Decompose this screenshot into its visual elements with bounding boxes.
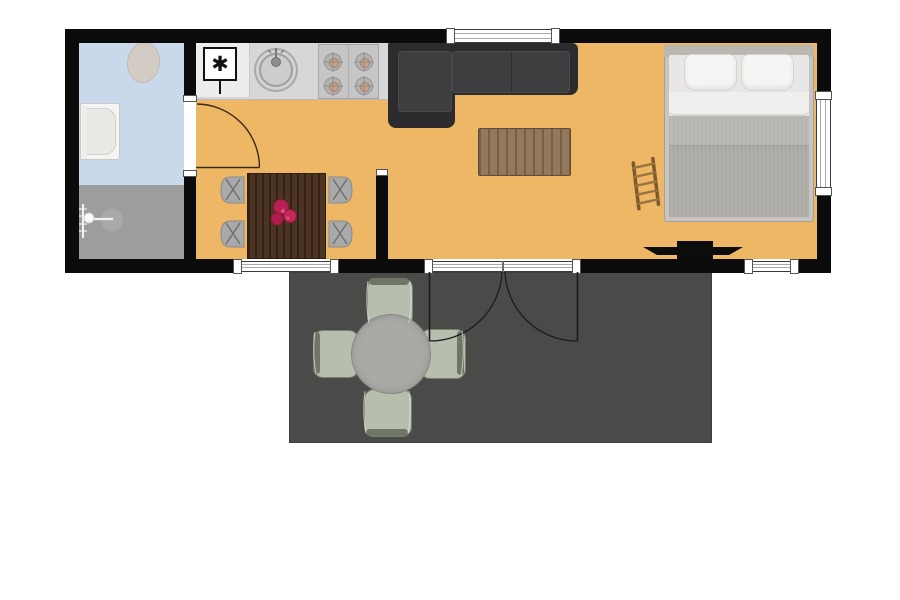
floor-plan: ✱	[0, 0, 900, 600]
sofa-seat-seam	[511, 52, 512, 92]
window-mullion	[452, 33, 554, 34]
window-mullion	[820, 97, 821, 191]
window-mullion	[751, 264, 793, 265]
door-jamb	[572, 259, 581, 274]
bathtub-deck	[82, 106, 87, 157]
deck-chair-north-backrest	[369, 278, 409, 285]
dining-table	[247, 173, 326, 259]
wall-bottom-1	[65, 259, 234, 273]
tv-screen	[643, 247, 743, 255]
window-mullion	[825, 97, 826, 191]
bathroom-doorway	[184, 102, 196, 170]
wall-partition-stub	[376, 175, 388, 259]
wall-bathroom-lower	[184, 172, 196, 259]
stove-burner-center	[360, 58, 370, 68]
wall-bathroom-upper	[184, 43, 196, 100]
window-cap	[446, 28, 455, 44]
stove-burner-center	[360, 82, 370, 92]
deck-chair-west-backrest	[313, 332, 320, 374]
bed-sheet-fold	[669, 92, 809, 116]
bathtub-basin	[85, 108, 116, 155]
stove-divider	[348, 45, 349, 98]
door-jamb	[183, 95, 197, 102]
wall-right-upper	[817, 29, 831, 92]
shower-water-area	[101, 209, 123, 231]
bed-blanket-lower	[669, 145, 809, 217]
window-cap	[790, 259, 799, 274]
sofa-chaise-cushion	[398, 51, 452, 112]
window-top	[447, 29, 559, 43]
window-bedroom	[816, 92, 831, 196]
window-cap	[233, 259, 242, 274]
window-mullion	[452, 38, 554, 39]
bed-pillow-left	[684, 54, 737, 91]
window-mullion	[240, 264, 332, 265]
wall-bottom-4	[799, 259, 831, 273]
kitchen-sink-basin	[259, 53, 293, 87]
bed-pillow-right	[741, 54, 794, 91]
window-cap	[744, 259, 753, 274]
window-cap	[815, 91, 832, 100]
coffee-table	[478, 128, 571, 176]
wall-bottom-3	[581, 259, 745, 273]
door-jamb	[183, 170, 197, 177]
stove-burner-center	[329, 58, 339, 68]
window-cap	[330, 259, 339, 274]
deck-chair-south-backrest	[366, 429, 408, 436]
wall-cap	[376, 169, 388, 176]
stove-burner-center	[329, 82, 339, 92]
wall-top-left	[65, 29, 447, 43]
utility-appliance-marker: ✱	[203, 47, 237, 81]
door-jamb	[424, 259, 433, 274]
deck-table	[351, 314, 431, 394]
utility-appliance-stem	[219, 81, 221, 94]
window-cap	[551, 28, 560, 44]
shower-floor	[79, 185, 184, 259]
wall-left	[65, 29, 79, 273]
window-cap	[815, 187, 832, 196]
wall-bottom-2	[338, 259, 425, 273]
window-mullion	[240, 267, 332, 268]
deck-chair-east-backrest	[457, 331, 464, 375]
french-door-center-post	[502, 261, 504, 272]
wall-top-right	[559, 29, 831, 43]
window-mullion	[751, 267, 793, 268]
